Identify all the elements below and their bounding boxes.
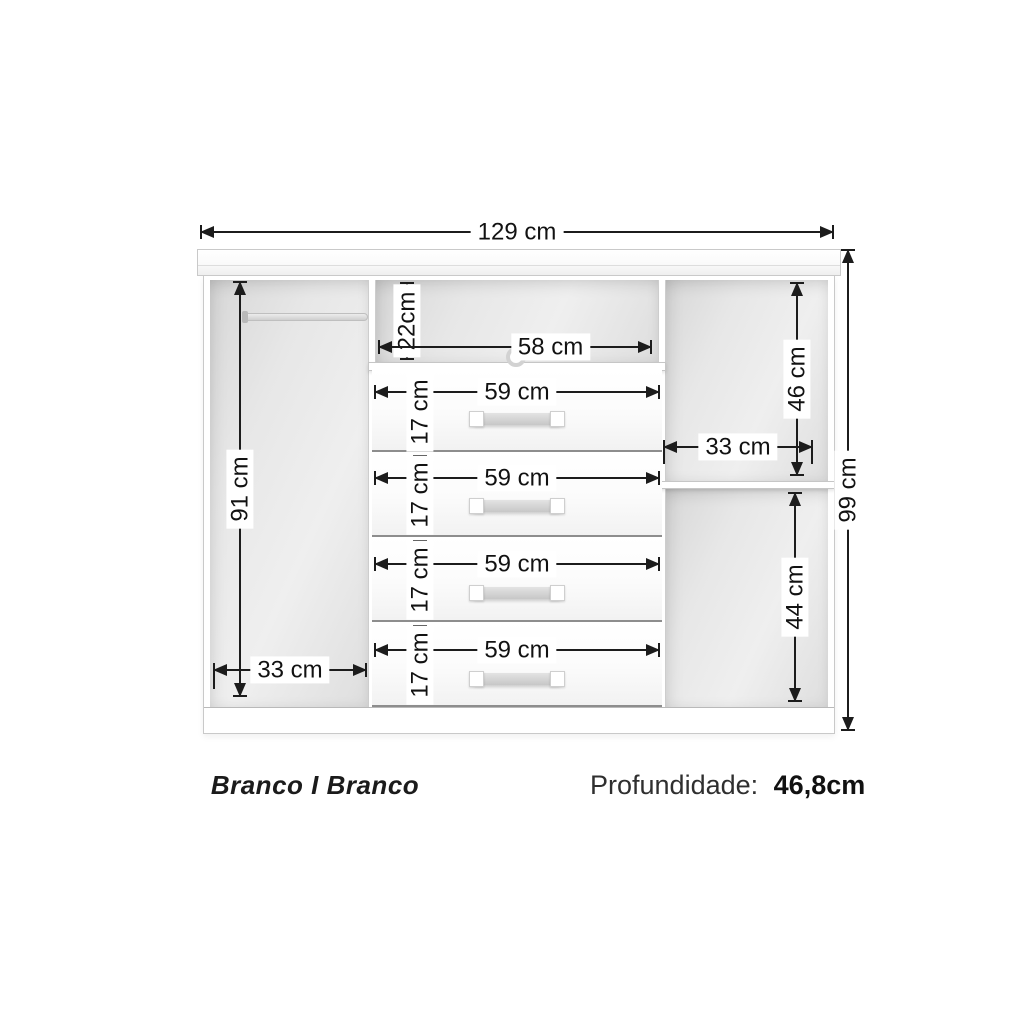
- dim-niche-width-label: 58 cm: [511, 333, 590, 360]
- depth-label: Profundidade:: [590, 770, 758, 800]
- dim-right-width-label: 33 cm: [698, 433, 777, 460]
- dim-drawer-2-height-label: 17 cm: [406, 455, 433, 534]
- depth-value: 46,8cm: [774, 770, 866, 800]
- dim-drawer-4-height-label: 17 cm: [406, 625, 433, 704]
- dim-drawer-1-width-label: 59 cm: [477, 378, 556, 405]
- dim-left-width-label: 33 cm: [250, 656, 329, 683]
- dim-overall-height: 99 cm: [841, 249, 855, 731]
- dim-drawer-4-height: 17 cm: [413, 625, 427, 704]
- dim-drawer-1-height: 17 cm: [413, 373, 427, 450]
- dim-drawer-2-width-label: 59 cm: [477, 464, 556, 491]
- wardrobe-dimension-diagram: 129 cm 99 cm 91 cm 33 cm 22cm 58 cm 59 c…: [0, 0, 1024, 1024]
- dim-overall-height-label: 99 cm: [834, 450, 861, 529]
- dim-drawer-3-width-label: 59 cm: [477, 550, 556, 577]
- dim-drawer-1-height-label: 17 cm: [406, 372, 433, 451]
- dim-drawer-2-height: 17 cm: [413, 455, 427, 534]
- right-shelf: [658, 481, 835, 489]
- dim-right-width: 33 cm: [663, 440, 813, 454]
- drawer-3-handle: [471, 587, 563, 599]
- dim-drawer-3-height-label: 17 cm: [406, 540, 433, 619]
- dim-right-bottom-height: 44 cm: [788, 492, 802, 702]
- cabinet-top-panel: [197, 249, 841, 276]
- dim-overall-width: 129 cm: [200, 225, 834, 239]
- base-plinth: [204, 707, 834, 733]
- depth-spec: Profundidade: 46,8cm: [590, 770, 865, 801]
- drawer-2-handle: [471, 500, 563, 512]
- dim-niche-width: 58 cm: [378, 340, 652, 354]
- dim-overall-width-label: 129 cm: [471, 218, 564, 245]
- dim-drawer-4-width-label: 59 cm: [477, 636, 556, 663]
- color-variant-label: Branco I Branco: [205, 770, 425, 801]
- drawer-4-handle: [471, 673, 563, 685]
- dim-left-width: 33 cm: [213, 663, 367, 677]
- dim-right-bottom-height-label: 44 cm: [781, 557, 808, 636]
- drawer-1-handle: [471, 413, 563, 425]
- hanging-rod: [242, 313, 368, 321]
- dim-drawer-3-height: 17 cm: [413, 540, 427, 619]
- dim-right-top-height-label: 46 cm: [783, 339, 810, 418]
- dim-left-height: 91 cm: [233, 281, 247, 697]
- dim-left-height-label: 91 cm: [226, 449, 253, 528]
- top-panel-seam: [198, 265, 840, 266]
